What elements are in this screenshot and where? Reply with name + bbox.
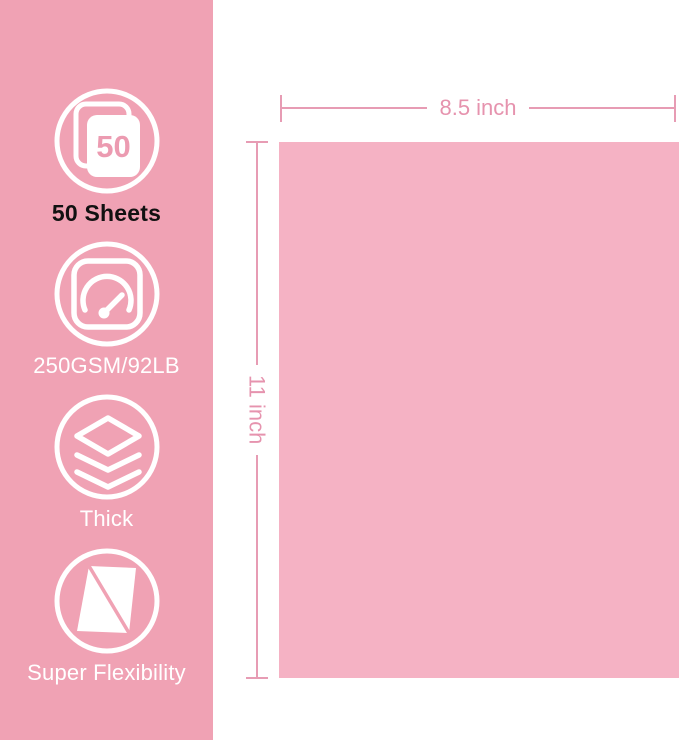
sheet-count-badge: 50 (96, 129, 130, 164)
flexible-sheet-icon (54, 548, 160, 654)
width-dimension: 8.5 inch (280, 94, 676, 122)
dimension-tick-right (674, 95, 676, 122)
feature-label-flexibility: Super Flexibility (0, 660, 213, 686)
paper-sheet (279, 142, 679, 678)
dimension-line-bottom-segment (256, 455, 258, 677)
dimension-line-top-segment (256, 143, 258, 365)
dimension-line-left-segment (282, 107, 427, 109)
width-dimension-label: 8.5 inch (427, 94, 528, 122)
height-dimension-label: 11 inch (244, 365, 270, 454)
feature-sidebar: 50 50 Sheets 250GSM/92LB Thick Supe (0, 0, 213, 740)
gauge-icon (54, 241, 160, 347)
dimension-tick-bottom (246, 677, 268, 679)
dimension-line-right-segment (529, 107, 674, 109)
feature-sheet-count: 50 50 Sheets (0, 88, 213, 226)
feature-label-thickness: Thick (0, 506, 213, 532)
feature-paper-weight: 250GSM/92LB (0, 241, 213, 379)
sheet-count-icon: 50 (54, 88, 160, 194)
layers-thickness-icon (54, 394, 160, 500)
feature-label-paper-weight: 250GSM/92LB (0, 353, 213, 379)
height-dimension: 11 inch (245, 141, 268, 679)
feature-thickness: Thick (0, 394, 213, 532)
feature-label-sheet-count: 50 Sheets (0, 200, 213, 226)
feature-flexibility: Super Flexibility (0, 548, 213, 686)
